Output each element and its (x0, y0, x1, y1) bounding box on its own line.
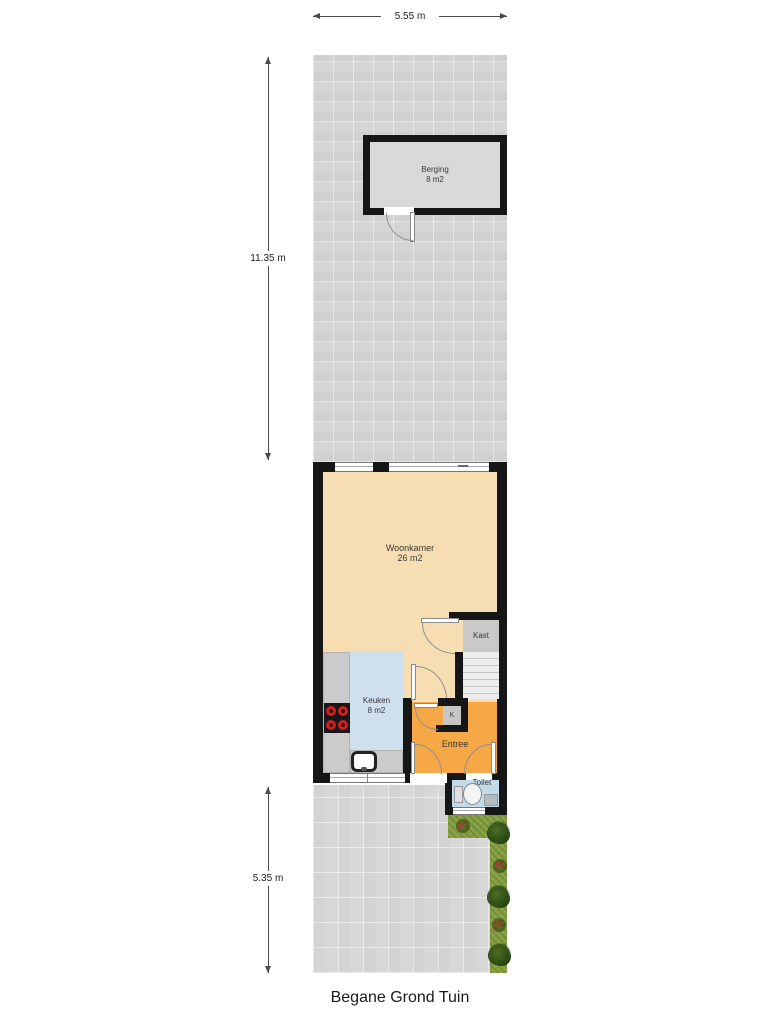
room-name: Woonkamer (386, 543, 434, 553)
berging-label: Berging 8 m2 (370, 142, 500, 208)
bush-plant (489, 944, 510, 965)
dim-top-label: 5.55 m (381, 9, 439, 24)
window-garden-left (335, 462, 373, 472)
kitchen-sink (351, 751, 377, 772)
floorplan-canvas: Berging 8 m2 Woonkamer 26 m2 Kast Keuken… (0, 0, 768, 1024)
room-name: Entree (442, 739, 469, 749)
room-area: 8 m2 (368, 706, 386, 716)
window-front-mullion (367, 774, 368, 782)
page-title: Begane Grond Tuin (284, 988, 516, 1008)
burner-icon (338, 706, 348, 716)
kast-floor: Kast (463, 620, 499, 652)
cooktop (324, 703, 350, 733)
burner-icon (326, 720, 336, 730)
dim-garden-bottom-label: 5.35 m (245, 871, 291, 886)
toilet-sink (484, 794, 498, 806)
garden-top (313, 55, 507, 462)
k-closet-floor: K (443, 706, 461, 725)
dim-arrow-icon (265, 966, 271, 973)
dim-arrow-icon (265, 787, 271, 794)
k-closet-bottom-wall (436, 725, 461, 732)
kast-label: Kast (463, 620, 499, 652)
staircase (463, 652, 499, 699)
toilet-door-leaf (491, 742, 496, 774)
room-name: Berging (421, 165, 449, 175)
dim-arrow-icon (500, 13, 507, 19)
front-door-opening (410, 773, 447, 783)
berging-room: Berging 8 m2 (363, 135, 507, 215)
keuken-label: Keuken 8 m2 (350, 694, 403, 718)
bush-plant (488, 822, 509, 843)
woonkamer-label: Woonkamer 26 m2 (345, 540, 475, 566)
dim-arrow-icon (265, 57, 271, 64)
toilet-bowl (463, 783, 482, 805)
room-area: 8 m2 (426, 175, 444, 185)
dim-arrow-icon (265, 453, 271, 460)
dim-arrow-icon (313, 13, 320, 19)
toilet-tank (454, 786, 463, 803)
window-garden-sliding-door (389, 462, 489, 472)
stairs-left-wall (455, 652, 463, 699)
flower-plant (492, 918, 506, 932)
k-closet-top-wall (438, 698, 461, 706)
flower-plant (493, 859, 507, 873)
k-closet-right-wall (461, 698, 468, 732)
faucet-icon (361, 767, 367, 771)
toilet-window (453, 807, 485, 815)
bush-plant (488, 886, 509, 907)
room-area: 26 m2 (397, 553, 422, 563)
dim-garden-top-label: 11.35 m (243, 251, 293, 266)
sliding-door-mark (458, 465, 468, 467)
burner-icon (326, 706, 336, 716)
k-closet-label: K (443, 706, 461, 725)
burner-icon (338, 720, 348, 730)
room-name: K (450, 711, 455, 721)
flower-plant (456, 819, 470, 833)
room-name: Keuken (363, 696, 390, 706)
room-name: Kast (473, 631, 489, 641)
